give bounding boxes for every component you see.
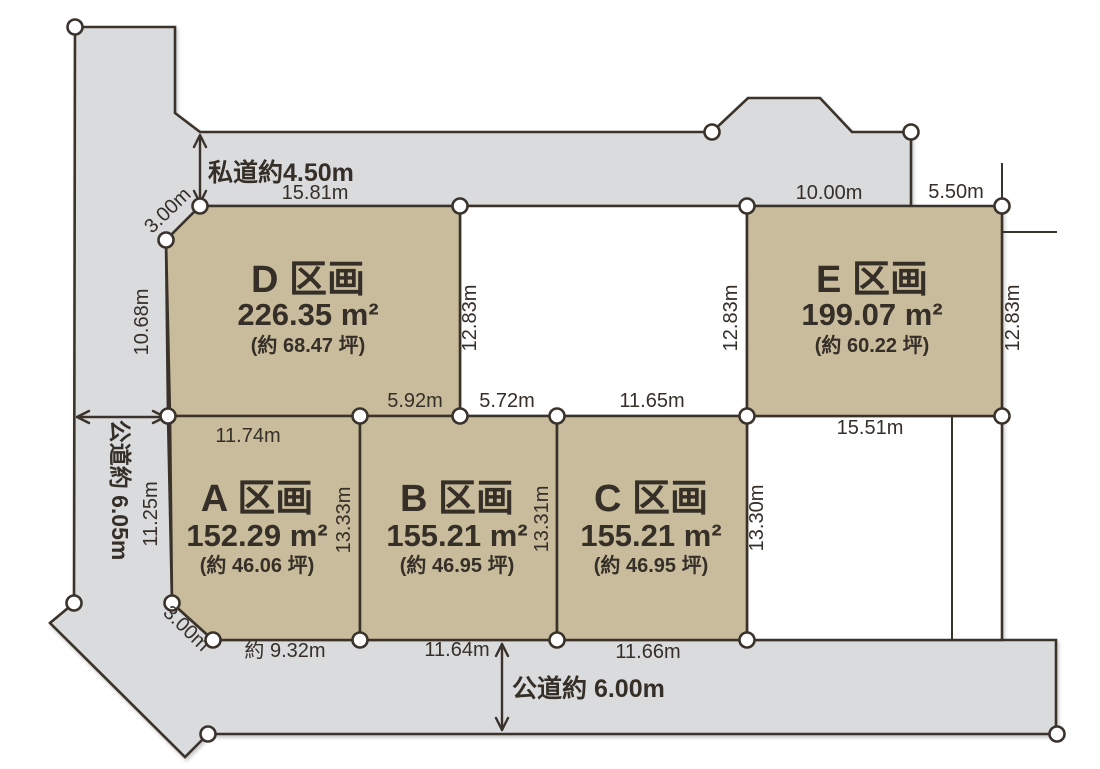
vertex-point <box>201 727 216 742</box>
plot-a-name: A 区画 <box>201 478 314 520</box>
dim-mid-plot-right: 12.83m <box>720 285 742 352</box>
plot-b-label: B 区画 155.21 m² (約 46.95 坪) <box>386 478 527 577</box>
vertex-point <box>550 409 565 424</box>
vertex-point <box>740 409 755 424</box>
plot-d-name: D 区画 <box>251 259 365 301</box>
dim-d-left: 10.68m <box>131 289 153 356</box>
plot-e-label: E 区画 199.07 m² (約 60.22 坪) <box>801 259 942 357</box>
plot-b-name: B 区画 <box>400 478 514 520</box>
plot-c-name: C 区画 <box>594 478 708 520</box>
plot-b-tsubo: (約 46.95 坪) <box>400 553 514 577</box>
plot-a-label: A 区画 152.29 m² (約 46.06 坪) <box>186 478 327 577</box>
vertex-point <box>705 125 720 140</box>
land-plot-diagram: 私道約4.50m 公道約 6.05m 公道約 6.00m 15.81m 10.0… <box>0 0 1100 769</box>
dim-a-bottom: 約 9.32m <box>244 639 325 662</box>
plot-d-tsubo: (約 68.47 坪) <box>251 333 365 357</box>
empty-plot-right <box>747 416 1002 640</box>
plot-e-area: 199.07 m² <box>801 297 942 332</box>
plot-d-label: D 区画 226.35 m² (約 68.47 坪) <box>237 259 378 357</box>
vertex-point <box>995 409 1010 424</box>
dim-e-bottom: 15.51m <box>837 417 904 439</box>
vertex-point <box>453 409 468 424</box>
empty-plot-middle <box>460 206 747 416</box>
plot-c-area: 155.21 m² <box>580 518 721 553</box>
vertex-point <box>550 633 565 648</box>
dim-c-top: 11.65m <box>619 390 684 412</box>
vertex-point <box>353 409 368 424</box>
plot-a-tsubo: (約 46.06 坪) <box>200 553 314 577</box>
public-road-left-label: 公道約 6.05m <box>107 420 133 561</box>
vertex-point <box>159 233 174 248</box>
vertex-point <box>453 199 468 214</box>
dim-c-right: 13.30m <box>746 485 768 552</box>
vertex-point <box>161 409 176 424</box>
dim-d-top: 15.81m <box>282 182 349 204</box>
dim-e-top-left: 10.00m <box>796 182 863 204</box>
dim-mid-plot-left: 12.83m <box>459 285 481 352</box>
plot-c-label: C 区画 155.21 m² (約 46.95 坪) <box>580 478 721 577</box>
vertex-point <box>1050 727 1065 742</box>
vertex-point <box>904 125 919 140</box>
vertex-point <box>67 596 82 611</box>
vertex-point <box>353 633 368 648</box>
plot-d-area: 226.35 m² <box>237 297 378 332</box>
dim-ab-boundary: 13.33m <box>333 487 355 554</box>
vertex-point <box>740 633 755 648</box>
plot-a-area: 152.29 m² <box>186 518 327 553</box>
dim-e-top-right: 5.50m <box>928 181 984 203</box>
dim-bc-boundary: 13.31m <box>531 486 553 553</box>
dim-b-top-right: 5.72m <box>479 390 535 412</box>
vertex-point <box>995 199 1010 214</box>
plot-b-area: 155.21 m² <box>386 518 527 553</box>
site-plan-svg: 私道約4.50m 公道約 6.05m 公道約 6.00m 15.81m 10.0… <box>0 0 1100 769</box>
vertex-point <box>68 20 83 35</box>
vertex-point <box>740 199 755 214</box>
plot-e-name: E 区画 <box>816 259 928 301</box>
dim-b-bottom: 11.64m <box>424 639 489 661</box>
plot-e-tsubo: (約 60.22 坪) <box>815 333 929 357</box>
plot-c-tsubo: (約 46.95 坪) <box>594 553 708 577</box>
dim-c-bottom: 11.66m <box>615 641 680 663</box>
dim-b-top-left: 5.92m <box>387 390 443 412</box>
vertex-point <box>193 199 208 214</box>
dim-e-right: 12.83m <box>1002 285 1024 352</box>
public-road-bottom-label: 公道約 6.00m <box>512 674 665 703</box>
dim-a-left: 11.25m <box>140 481 162 546</box>
dim-a-top: 11.74m <box>215 425 280 447</box>
